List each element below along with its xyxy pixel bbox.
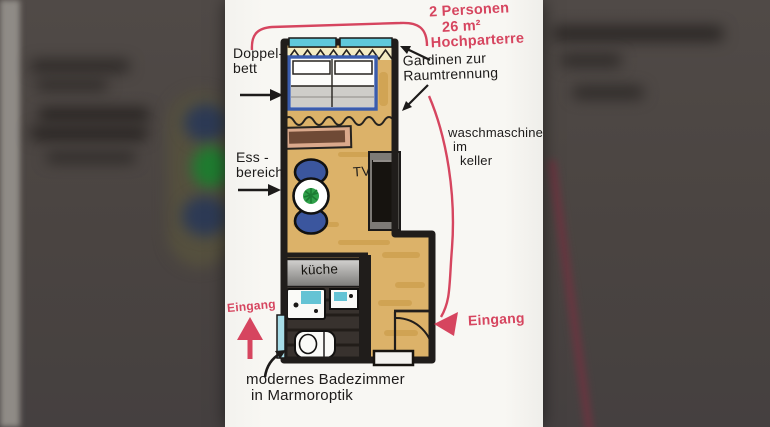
bathroom [285,287,362,359]
window [289,38,392,47]
floorplan-drawing [0,0,770,427]
badezimmer-label: modernes Badezimmer in Marmoroptik [246,372,405,404]
eingang-right-label: Eingang [468,311,525,329]
doppelbett-label: Doppel- bett [233,46,283,76]
kueche-label: küche [301,262,339,278]
red-entrance-arrowhead [434,312,458,336]
shower [287,289,325,319]
screenshot-canvas: 2 Personen 26 m² Hochparterre Doppel- be… [0,0,770,427]
red-left-entrance-arrow [237,317,263,359]
essbereich-arrow [238,184,281,196]
doppelbett-arrow [240,89,283,101]
double-bed [289,57,376,109]
table-plant [303,188,319,204]
gardinen-label: Gardinen zur Raumtrennung [403,50,499,84]
sideboard [284,126,352,149]
tv-label: TV [353,164,372,180]
unit-info-label: 2 Personen 26 m² Hochparterre [429,1,525,53]
doormat [374,351,413,365]
dining-set [294,160,329,234]
toilet [295,331,335,358]
waschmaschine-label: waschmaschine im keller [448,126,543,168]
bath-sink [330,289,358,309]
gardinen-arrow-lower [402,85,428,111]
interior-wall [359,255,371,362]
essbereich-label: Ess - bereich [236,150,283,180]
